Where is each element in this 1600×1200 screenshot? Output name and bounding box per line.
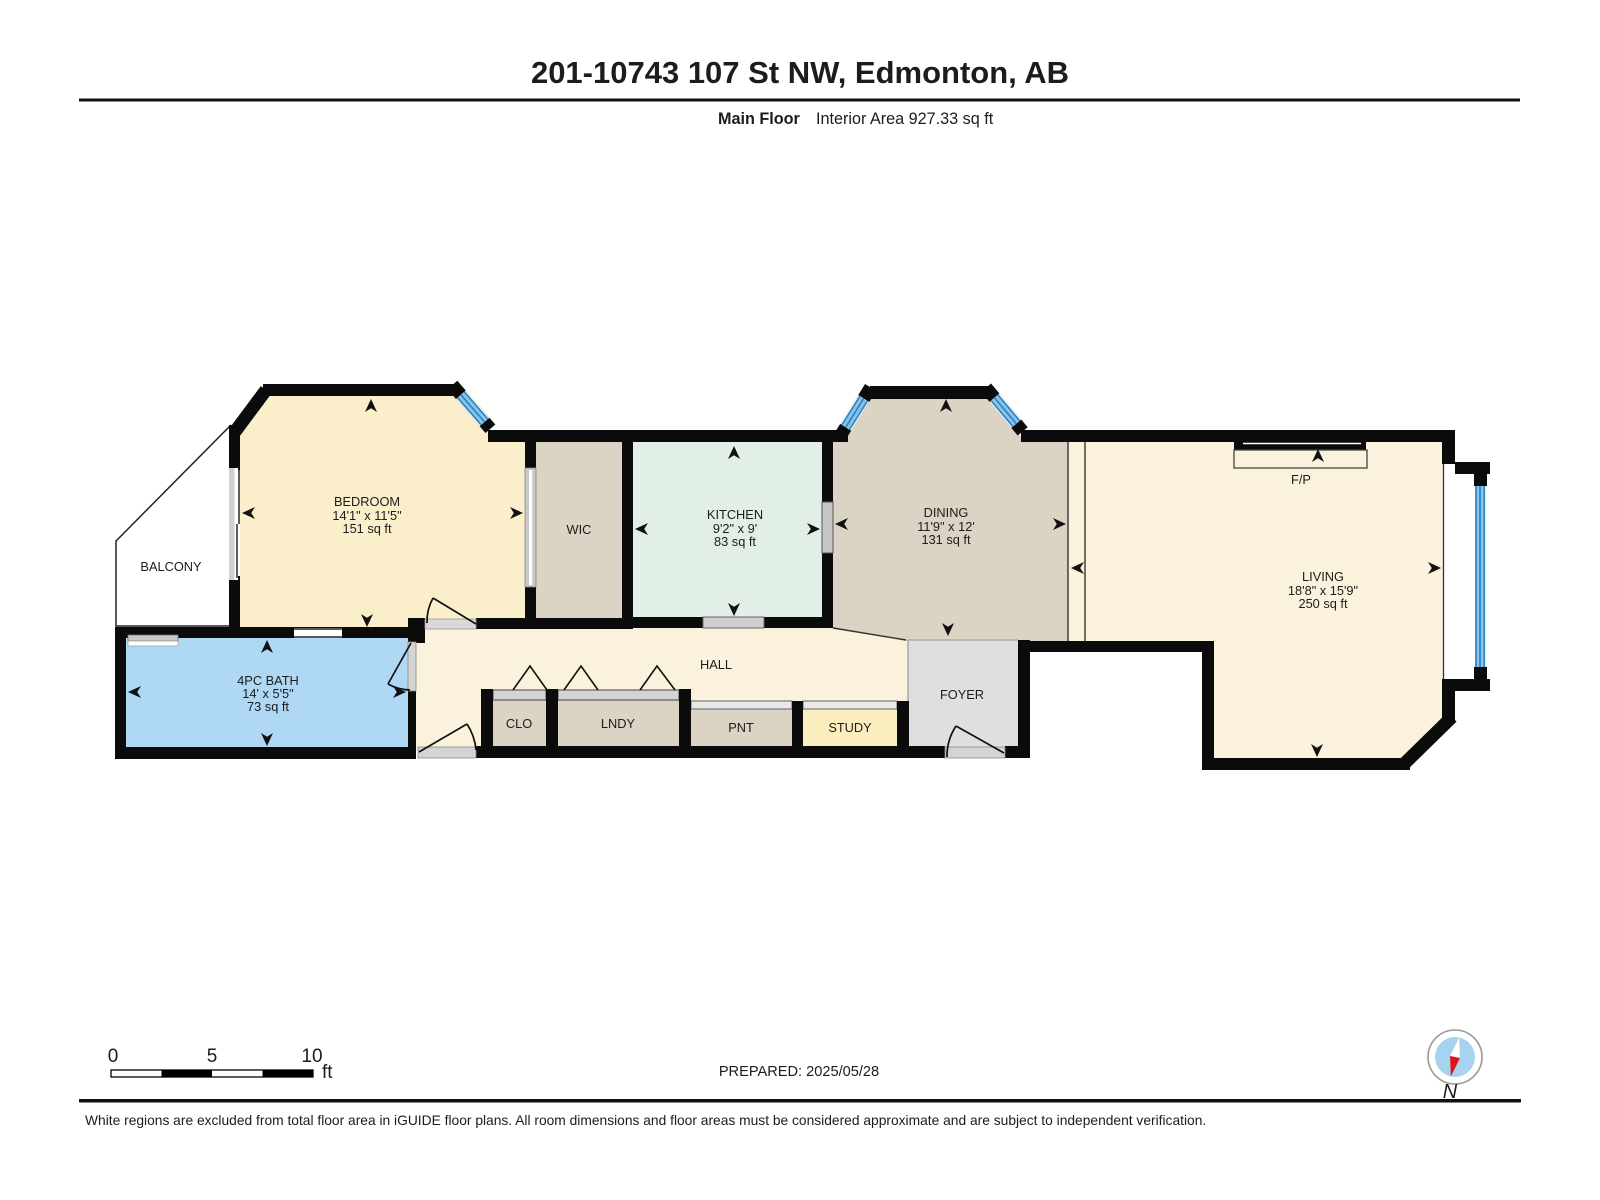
svg-text:F/P: F/P: [1291, 472, 1311, 487]
svg-text:White regions are excluded fro: White regions are excluded from total fl…: [85, 1113, 1206, 1128]
svg-text:LNDY: LNDY: [601, 716, 636, 731]
svg-text:WIC: WIC: [567, 522, 592, 537]
svg-text:STUDY: STUDY: [828, 720, 872, 735]
svg-text:CLO: CLO: [506, 716, 532, 731]
svg-text:BALCONY: BALCONY: [140, 559, 202, 574]
svg-text:Interior Area 927.33 sq ft: Interior Area 927.33 sq ft: [816, 110, 994, 128]
svg-text:LIVING: LIVING: [1302, 569, 1344, 584]
svg-text:151 sq ft: 151 sq ft: [342, 521, 392, 536]
svg-text:DINING: DINING: [924, 505, 969, 520]
svg-text:5: 5: [207, 1046, 218, 1067]
svg-text:131 sq ft: 131 sq ft: [921, 532, 971, 547]
svg-text:BEDROOM: BEDROOM: [334, 494, 400, 509]
svg-text:0: 0: [108, 1046, 119, 1067]
svg-text:FOYER: FOYER: [940, 687, 984, 702]
svg-text:KITCHEN: KITCHEN: [707, 507, 763, 522]
svg-text:201-10743 107 St NW, Edmonton,: 201-10743 107 St NW, Edmonton, AB: [531, 55, 1069, 90]
svg-text:PREPARED: 2025/05/28: PREPARED: 2025/05/28: [719, 1064, 879, 1080]
svg-text:ft: ft: [322, 1062, 333, 1083]
svg-text:HALL: HALL: [700, 657, 732, 672]
svg-text:250 sq ft: 250 sq ft: [1298, 596, 1348, 611]
svg-text:PNT: PNT: [728, 720, 754, 735]
svg-text:83 sq ft: 83 sq ft: [714, 534, 756, 549]
svg-text:Main Floor: Main Floor: [718, 110, 801, 128]
svg-text:10: 10: [301, 1046, 322, 1067]
svg-text:73 sq ft: 73 sq ft: [247, 699, 289, 714]
